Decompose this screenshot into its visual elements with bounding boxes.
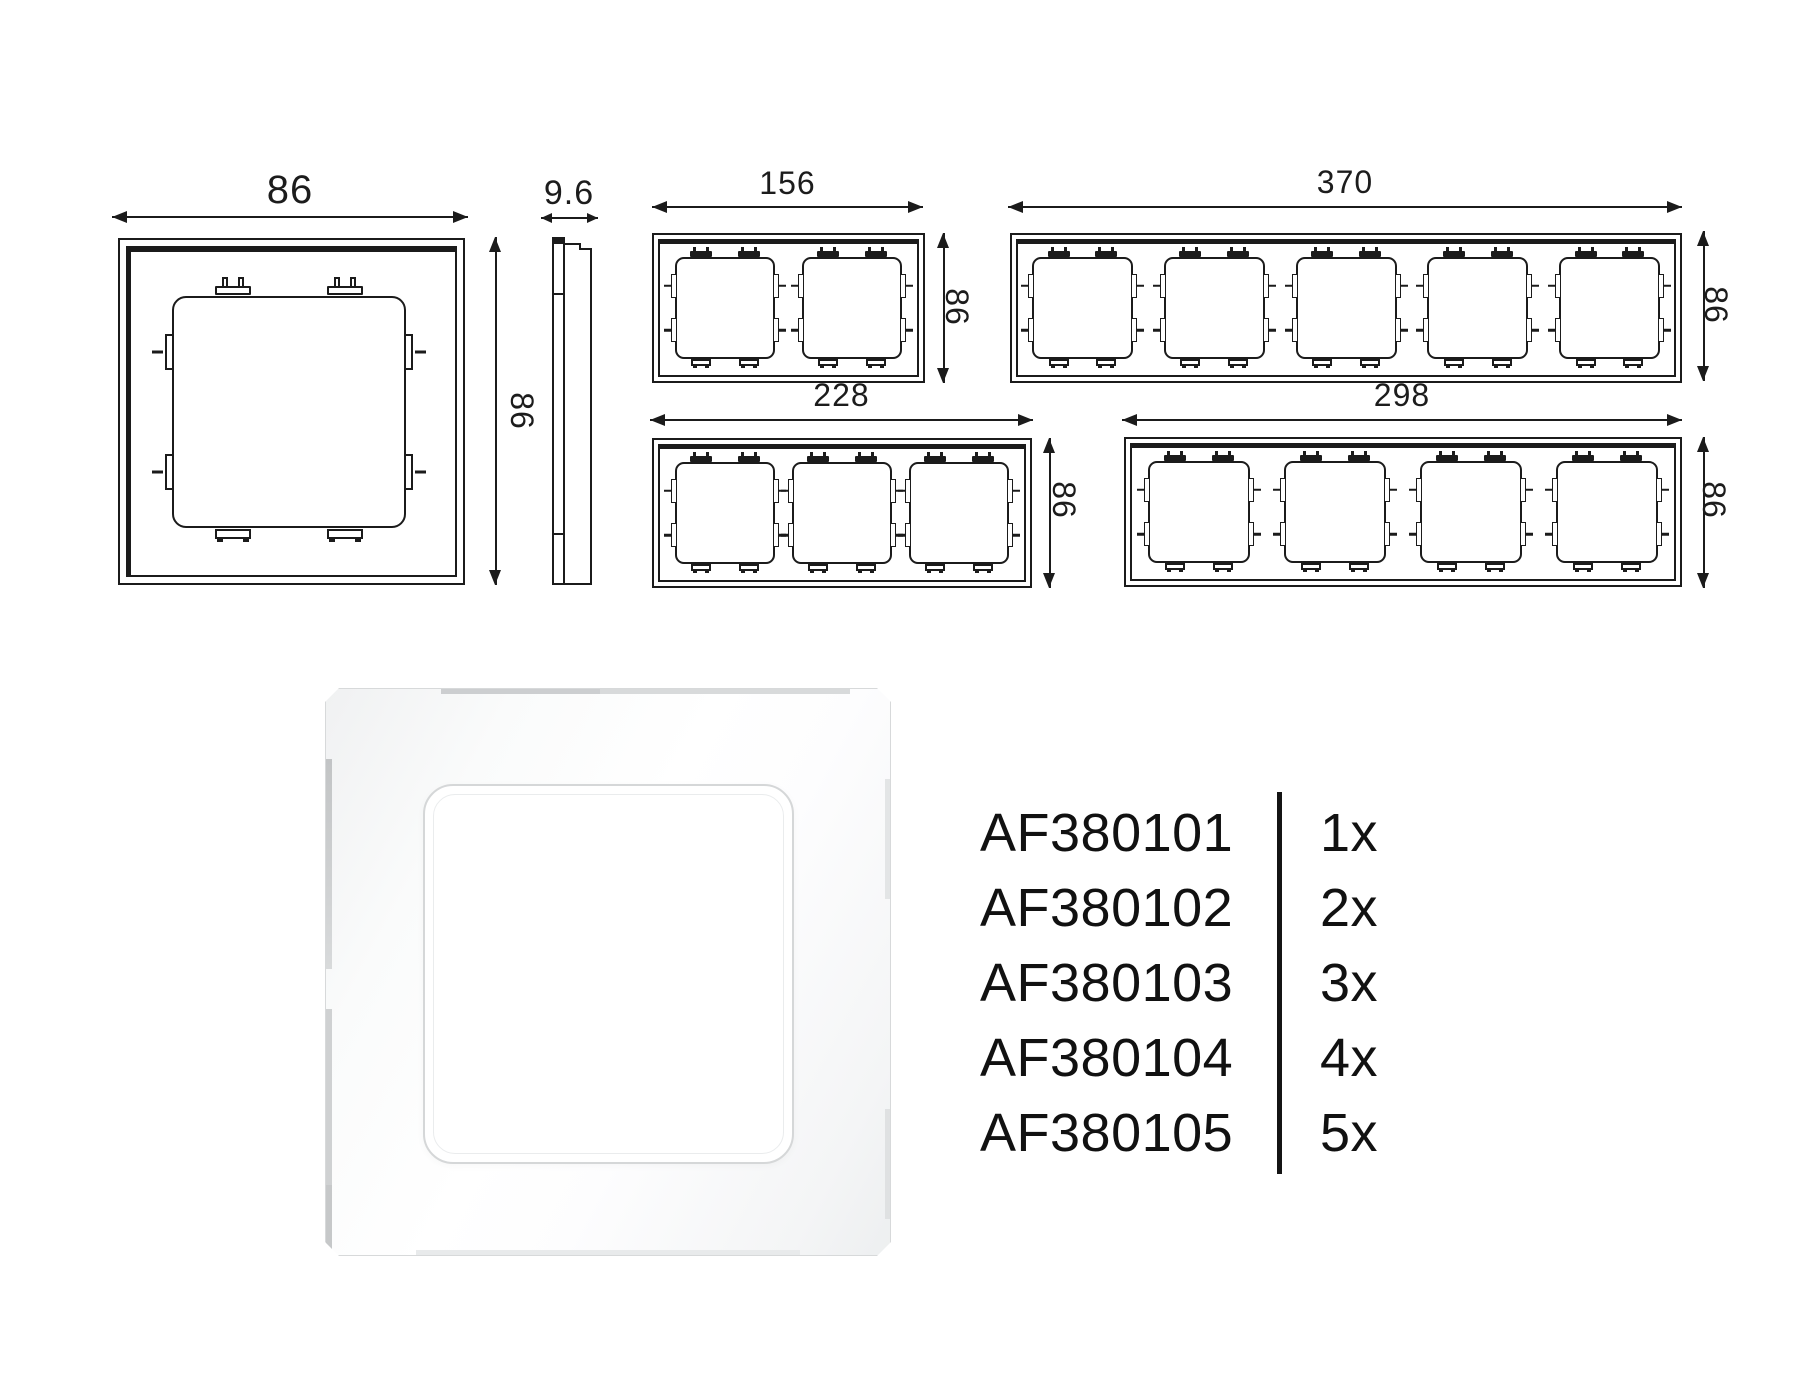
mount-clip-top xyxy=(1227,251,1249,257)
mount-clip-right xyxy=(1007,523,1016,547)
mount-clip-right xyxy=(900,274,909,298)
photo-edge-highlight xyxy=(326,1009,332,1189)
dimension-line-width-4gang xyxy=(1122,419,1682,421)
frame-opening xyxy=(1284,461,1386,563)
profile-seam xyxy=(554,293,563,295)
profile-back-strip xyxy=(563,243,592,585)
dimension-label-height-2gang: 86 xyxy=(935,285,979,329)
mount-clip-right xyxy=(1520,478,1529,502)
mount-clip-top xyxy=(972,456,994,462)
mount-clip-left xyxy=(795,274,804,298)
mount-clip-right xyxy=(1131,318,1140,342)
mount-clip-right xyxy=(1526,274,1535,298)
frame-openings xyxy=(120,240,463,583)
mount-clip-left xyxy=(1552,318,1561,342)
photo-edge-highlight xyxy=(600,689,850,694)
mount-clip-top xyxy=(738,251,760,257)
mount-clip-left xyxy=(1025,274,1034,298)
mount-clip-bottom xyxy=(1049,359,1069,366)
frame-drawing-5gang xyxy=(1010,233,1682,383)
frame-opening xyxy=(1164,257,1265,359)
mount-clip-left xyxy=(668,318,677,342)
dimension-label-width-1gang: 86 xyxy=(112,168,468,213)
mount-clip-right xyxy=(1658,274,1667,298)
frame-openings xyxy=(654,235,923,381)
mount-clip-right xyxy=(773,318,782,342)
mount-clip-top xyxy=(215,286,251,295)
mount-clip-right xyxy=(1520,522,1529,546)
dimension-label-width-2gang: 156 xyxy=(652,165,923,202)
mount-clip-left xyxy=(160,454,174,490)
mount-clip-top xyxy=(807,456,829,462)
frame-opening xyxy=(1420,461,1522,563)
profile-seam xyxy=(554,533,563,535)
mount-clip-left xyxy=(795,318,804,342)
frame-drawing-1gang xyxy=(118,238,465,585)
mount-clip-right xyxy=(1263,274,1272,298)
mount-clip-left xyxy=(1157,318,1166,342)
mount-clip-left xyxy=(668,479,677,503)
product-qty-column: 1x 2x 3x 4x 5x xyxy=(1320,796,1378,1171)
dimension-line-width-2gang xyxy=(652,206,923,208)
mount-clip-bottom xyxy=(1349,563,1369,570)
mount-clip-top xyxy=(1620,455,1642,461)
mount-clip-right xyxy=(1263,318,1272,342)
mount-clip-bottom xyxy=(1623,359,1643,366)
mount-clip-bottom xyxy=(973,564,993,571)
mount-clip-bottom xyxy=(856,564,876,571)
product-qty: 5x xyxy=(1320,1096,1378,1171)
mount-clip-bottom xyxy=(818,359,838,366)
frame-drawing-3gang xyxy=(652,438,1032,588)
product-code-column: AF380101 AF380102 AF380103 AF380104 AF38… xyxy=(980,796,1233,1171)
mount-clip-top xyxy=(1359,251,1381,257)
mount-clip-right xyxy=(900,318,909,342)
mount-clip-top xyxy=(817,251,839,257)
mount-clip-top xyxy=(1300,455,1322,461)
mount-clip-bottom xyxy=(1437,563,1457,570)
mount-clip-left xyxy=(1289,274,1298,298)
mount-clip-right xyxy=(1526,318,1535,342)
mount-clip-bottom xyxy=(1301,563,1321,570)
dimension-label-width-3gang: 228 xyxy=(650,377,1033,414)
frame-openings xyxy=(654,440,1030,586)
mount-clip-top xyxy=(1443,251,1465,257)
mount-clip-bottom xyxy=(1228,359,1248,366)
mount-clip-bottom xyxy=(1312,359,1332,366)
frame-opening xyxy=(1559,257,1660,359)
mount-clip-right xyxy=(773,274,782,298)
photo-edge-highlight xyxy=(441,689,601,694)
mount-clip-top xyxy=(865,251,887,257)
mount-clip-bottom xyxy=(866,359,886,366)
mount-clip-bottom xyxy=(691,359,711,366)
photo-edge-highlight xyxy=(885,779,890,899)
mount-clip-top xyxy=(690,251,712,257)
mount-clip-left xyxy=(668,274,677,298)
frame-opening xyxy=(1148,461,1250,563)
mount-clip-left xyxy=(1552,274,1561,298)
mount-clip-left xyxy=(1277,522,1286,546)
technical-diagram-sheet: 86 86 9.6 156 86 370 86 228 86 298 xyxy=(0,0,1800,1400)
mount-clip-top xyxy=(1491,251,1513,257)
mount-clip-bottom xyxy=(1576,359,1596,366)
mount-clip-top xyxy=(1179,251,1201,257)
dimension-line-height-1gang xyxy=(495,237,497,585)
mount-clip-bottom xyxy=(327,529,363,539)
mount-clip-top xyxy=(1575,251,1597,257)
mount-clip-left xyxy=(785,479,794,503)
frame-opening xyxy=(675,462,775,564)
photo-edge-highlight xyxy=(326,759,332,969)
mount-clip-top xyxy=(1484,455,1506,461)
product-photo-opening-inner xyxy=(433,794,784,1154)
mount-clip-right xyxy=(1384,478,1393,502)
mount-clip-bottom xyxy=(1096,359,1116,366)
mount-clip-right xyxy=(1656,522,1665,546)
mount-clip-left xyxy=(785,523,794,547)
mount-clip-top xyxy=(1311,251,1333,257)
mount-clip-right xyxy=(404,334,418,370)
product-code: AF380101 xyxy=(980,796,1233,871)
mount-clip-bottom xyxy=(1621,563,1641,570)
frame-openings xyxy=(1012,235,1680,381)
mount-clip-bottom xyxy=(1180,359,1200,366)
photo-edge-highlight xyxy=(416,1250,800,1255)
dimension-label-height-5gang: 86 xyxy=(1694,283,1738,327)
mount-clip-left xyxy=(902,479,911,503)
product-code: AF380104 xyxy=(980,1021,1233,1096)
mount-clip-bottom xyxy=(739,564,759,571)
product-code: AF380103 xyxy=(980,946,1233,1021)
mount-clip-left xyxy=(668,523,677,547)
mount-clip-top xyxy=(738,456,760,462)
mount-clip-right xyxy=(1656,478,1665,502)
mount-clip-bottom xyxy=(1213,563,1233,570)
dimension-line-depth-profile xyxy=(541,217,598,219)
table-divider xyxy=(1277,792,1282,1174)
product-qty: 1x xyxy=(1320,796,1378,871)
frame-opening xyxy=(909,462,1009,564)
product-qty: 4x xyxy=(1320,1021,1378,1096)
mount-clip-top xyxy=(690,456,712,462)
mount-clip-right xyxy=(1658,318,1667,342)
mount-clip-top xyxy=(924,456,946,462)
dimension-label-depth-profile: 9.6 xyxy=(519,174,619,213)
mount-clip-left xyxy=(1141,522,1150,546)
frame-opening xyxy=(172,296,406,528)
mount-clip-right xyxy=(1248,522,1257,546)
frame-opening xyxy=(1427,257,1528,359)
frame-drawing-4gang xyxy=(1124,437,1682,587)
frame-opening xyxy=(802,257,902,359)
mount-clip-bottom xyxy=(215,529,251,539)
mount-clip-left xyxy=(1549,522,1558,546)
mount-clip-bottom xyxy=(691,564,711,571)
frame-opening xyxy=(792,462,892,564)
mount-clip-bottom xyxy=(925,564,945,571)
mount-clip-bottom xyxy=(739,359,759,366)
mount-clip-right xyxy=(1131,274,1140,298)
frame-opening xyxy=(1296,257,1397,359)
dimension-line-width-1gang xyxy=(112,216,468,218)
mount-clip-left xyxy=(1025,318,1034,342)
dimension-label-width-4gang: 298 xyxy=(1122,377,1682,414)
product-photo-opening xyxy=(423,784,794,1164)
mount-clip-right xyxy=(1248,478,1257,502)
mount-clip-left xyxy=(1277,478,1286,502)
mount-clip-bottom xyxy=(1360,359,1380,366)
dimension-label-height-4gang: 86 xyxy=(1692,478,1736,522)
mount-clip-left xyxy=(1420,318,1429,342)
profile-notch xyxy=(579,243,592,250)
frame-drawing-2gang xyxy=(652,233,925,383)
dimension-line-width-3gang xyxy=(650,419,1033,421)
mount-clip-right xyxy=(1384,522,1393,546)
dimension-line-width-5gang xyxy=(1008,206,1682,208)
mount-clip-left xyxy=(902,523,911,547)
mount-clip-bottom xyxy=(1573,563,1593,570)
mount-clip-left xyxy=(1420,274,1429,298)
product-qty: 3x xyxy=(1320,946,1378,1021)
mount-clip-bottom xyxy=(1492,359,1512,366)
mount-clip-top xyxy=(1622,251,1644,257)
product-qty: 2x xyxy=(1320,871,1378,946)
dimension-label-height-1gang: 86 xyxy=(500,389,544,433)
photo-edge-highlight xyxy=(885,1109,890,1219)
mount-clip-bottom xyxy=(1165,563,1185,570)
mount-clip-right xyxy=(1007,479,1016,503)
mount-clip-right xyxy=(1395,318,1404,342)
mount-clip-top xyxy=(1348,455,1370,461)
mount-clip-top xyxy=(1572,455,1594,461)
product-code: AF380102 xyxy=(980,871,1233,946)
product-photo-frame xyxy=(325,688,891,1256)
dimension-label-width-5gang: 370 xyxy=(1008,164,1682,201)
mount-clip-left xyxy=(1413,478,1422,502)
mount-clip-left xyxy=(1413,522,1422,546)
mount-clip-left xyxy=(1157,274,1166,298)
photo-edge-highlight xyxy=(326,1185,332,1255)
mount-clip-top xyxy=(855,456,877,462)
mount-clip-right xyxy=(1395,274,1404,298)
mount-clip-top xyxy=(327,286,363,295)
mount-clip-top xyxy=(1212,455,1234,461)
product-code: AF380105 xyxy=(980,1096,1233,1171)
frame-openings xyxy=(1126,439,1680,585)
mount-clip-bottom xyxy=(808,564,828,571)
mount-clip-bottom xyxy=(1444,359,1464,366)
dimension-label-height-3gang: 86 xyxy=(1042,478,1086,522)
mount-clip-left xyxy=(1549,478,1558,502)
frame-opening xyxy=(1556,461,1658,563)
mount-clip-left xyxy=(1141,478,1150,502)
frame-opening xyxy=(1032,257,1133,359)
mount-clip-left xyxy=(1289,318,1298,342)
mount-clip-top xyxy=(1095,251,1117,257)
frame-opening xyxy=(675,257,775,359)
mount-clip-top xyxy=(1436,455,1458,461)
mount-clip-right xyxy=(404,454,418,490)
mount-clip-left xyxy=(160,334,174,370)
mount-clip-bottom xyxy=(1485,563,1505,570)
mount-clip-top xyxy=(1164,455,1186,461)
mount-clip-top xyxy=(1048,251,1070,257)
